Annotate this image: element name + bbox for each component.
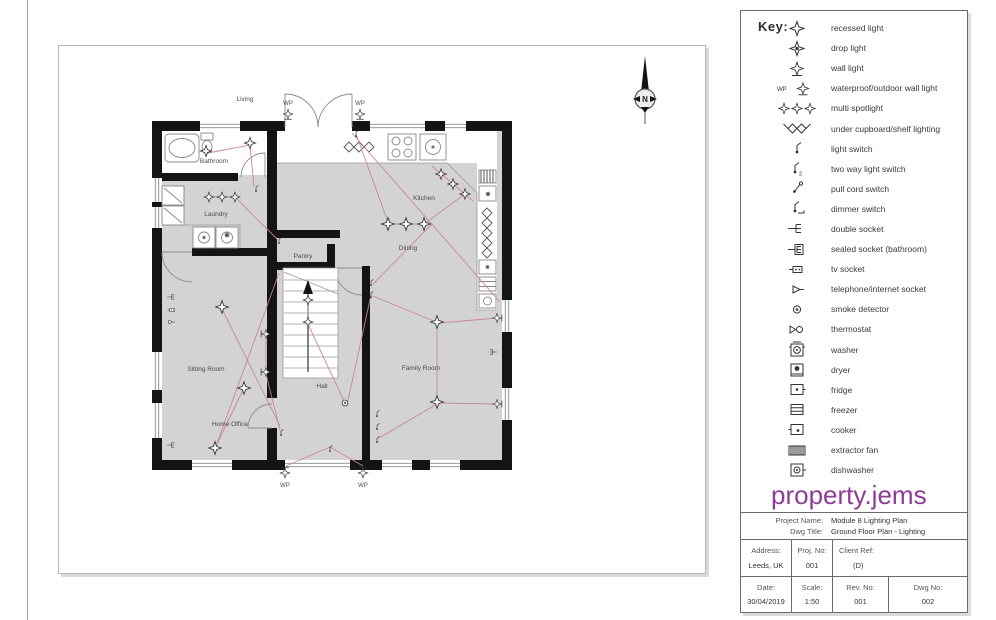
fridge-icon	[771, 381, 823, 398]
key-item: sealed socket (bathroom)	[771, 239, 965, 259]
key-item: smoke detector	[771, 299, 965, 319]
thermostat-icon	[771, 321, 823, 338]
key-item: dishwasher	[771, 460, 965, 480]
key-item: thermostat	[771, 319, 965, 339]
key-item: washer	[771, 340, 965, 360]
key-panel: Key: recessed light drop light wall ligh…	[740, 10, 968, 613]
project-name-value: Module 8 Lighting Plan	[831, 516, 907, 525]
key-item: tv socket	[771, 259, 965, 279]
key-item: cooker	[771, 420, 965, 440]
under-cupboard-shelf-lighting-icon	[771, 120, 823, 137]
svg-text:WP: WP	[777, 87, 787, 93]
extractor-fan-icon	[771, 442, 823, 459]
date-label: Date:	[757, 583, 775, 592]
key-item: recessed light	[771, 18, 965, 38]
key-item: extractor fan	[771, 440, 965, 460]
dryer-icon	[771, 361, 823, 379]
company-logo: property.jems	[771, 480, 927, 511]
key-item: light switch	[771, 139, 965, 159]
north-arrow: N	[633, 56, 657, 124]
client-ref-label: Client Ref:	[839, 546, 874, 555]
room-label-home-office: Home Office	[212, 421, 248, 428]
room-label-family-room: Family Room	[402, 365, 440, 372]
key-item: pull cord switch	[771, 179, 965, 199]
title-block: Project Name:Module 8 Lighting Plan Dwg …	[740, 512, 968, 613]
scale-value: 1:50	[805, 597, 820, 606]
wall-light-icon	[771, 60, 823, 77]
north-label: N	[642, 95, 648, 104]
proj-no-value: 001	[806, 561, 819, 570]
svg-text:WP: WP	[355, 101, 365, 107]
key-list: recessed light drop light wall light WPw…	[771, 18, 965, 480]
dwg-no-label: Dwg No:	[914, 583, 943, 592]
sealed-socket-icon	[771, 241, 823, 258]
key-item: drop light	[771, 38, 965, 58]
key-item: double socket	[771, 219, 965, 239]
room-label-laundry: Laundry	[204, 211, 228, 218]
cooker-icon	[771, 421, 823, 438]
dryer-icon	[216, 227, 238, 248]
room-label-dining: Dining	[399, 245, 418, 252]
key-item: WPwaterproof/outdoor wall light	[771, 78, 965, 98]
dishwasher-icon	[479, 294, 496, 308]
date-value: 30/04/2019	[747, 597, 785, 606]
dwg-no-value: 002	[922, 597, 935, 606]
room-label-bathroom: Bathroom	[200, 158, 228, 165]
room-label-living: Living	[237, 96, 254, 103]
scale-label: Scale:	[802, 583, 823, 592]
rev-no-value: 001	[854, 597, 867, 606]
drop-light-icon	[771, 40, 823, 57]
title-block-middle: Address:Leeds, UK Proj. No:001 Client Re…	[741, 540, 967, 577]
svg-text:WP: WP	[283, 101, 293, 107]
title-block-bottom: Date:30/04/2019 Scale:1:50 Rev. No:001 D…	[741, 577, 967, 612]
hob-icon	[388, 134, 416, 160]
drawing-page: Living Bathroom Laundry Pantry Kitchen D…	[0, 0, 996, 620]
sink-icon	[420, 134, 446, 160]
wall-light-icon	[355, 109, 364, 119]
key-item: 2two way light switch	[771, 159, 965, 179]
waterproof-outdoor-wall-light-icon: WP	[771, 80, 823, 97]
key-item: telephone/internet socket	[771, 279, 965, 299]
freezer-icon	[479, 277, 496, 291]
dwg-title-label: Dwg Title:	[741, 527, 823, 536]
extractor-fan-icon	[479, 170, 496, 183]
room-label-hall: Hall	[316, 383, 328, 390]
washer-icon	[193, 227, 215, 248]
telephone-internet-socket-icon	[771, 281, 823, 298]
room-label-sitting-room: Sitting Room	[187, 366, 224, 373]
key-item: under cupboard/shelf lighting	[771, 118, 965, 138]
project-name-label: Project Name:	[741, 516, 823, 525]
room-label-kitchen: Kitchen	[413, 195, 435, 202]
client-ref-value: (D)	[839, 561, 863, 570]
key-item: wall light	[771, 58, 965, 78]
key-item: dimmer switch	[771, 199, 965, 219]
two-way-light-switch-icon: 2	[771, 160, 823, 177]
smoke-detector-icon	[342, 400, 348, 406]
key-item: multi spotlight	[771, 98, 965, 118]
recessed-light-icon	[771, 20, 823, 37]
proj-no-label: Proj. No:	[797, 546, 826, 555]
dishwasher-icon	[771, 461, 823, 479]
key-item: fridge	[771, 380, 965, 400]
rev-no-label: Rev. No:	[846, 583, 875, 592]
fridge-icon	[479, 260, 496, 274]
dwg-title-value: Ground Floor Plan - Lighting	[831, 527, 925, 536]
washer-icon	[771, 341, 823, 359]
tv-socket-icon	[771, 261, 823, 278]
title-block-header: Project Name:Module 8 Lighting Plan Dwg …	[741, 513, 967, 540]
pull-cord-switch-icon	[771, 180, 823, 197]
cooker-icon	[479, 186, 496, 201]
freezer-icon	[771, 401, 823, 418]
light-switch-icon	[771, 140, 823, 157]
smoke-detector-icon	[771, 301, 823, 318]
dimmer-switch-icon	[771, 200, 823, 217]
svg-text:WP: WP	[358, 483, 368, 489]
multi-spotlight-icon	[771, 100, 823, 117]
room-label-pantry: Pantry	[294, 253, 314, 260]
double-socket-icon	[771, 220, 823, 237]
svg-text:WP: WP	[280, 483, 290, 489]
key-item: dryer	[771, 360, 965, 380]
address-value: Leeds, UK	[748, 561, 783, 570]
key-item: freezer	[771, 400, 965, 420]
address-label: Address:	[751, 546, 781, 555]
svg-text:2: 2	[799, 172, 802, 178]
